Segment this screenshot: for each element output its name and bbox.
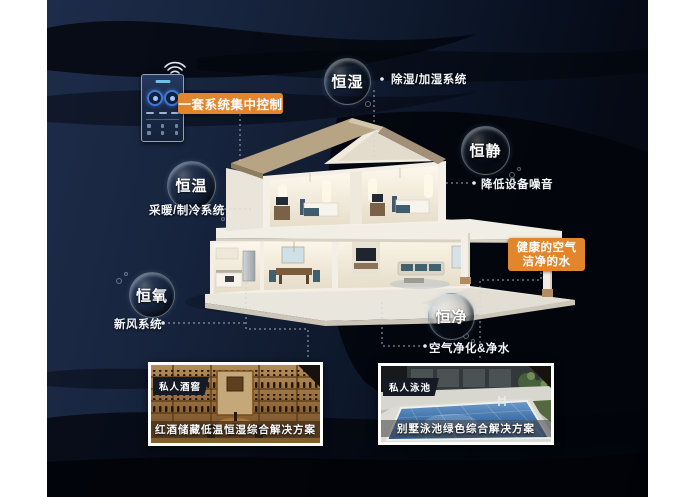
device-label-row <box>146 112 179 114</box>
callout-reduce-equipment-noise: 降低设备噪音 <box>481 176 553 192</box>
callout-fresh-air-system: 新风系统 <box>114 316 162 332</box>
corner-ribbon <box>529 366 551 388</box>
callout-heating-cooling-system: 采暖/制冷系统 <box>149 202 225 218</box>
pool-tag: 私人泳池 <box>383 378 439 396</box>
corner-ribbon <box>298 365 320 387</box>
clean-water-line: 洁净的水 <box>523 255 571 269</box>
pool-caption: 别墅泳池绿色综合解决方案 <box>381 420 551 437</box>
wine-cellar-tag: 私人酒窖 <box>153 377 209 395</box>
device-screen-title <box>155 80 170 83</box>
callout-dehumidify-humidify-system: 除湿/加湿系统 <box>391 71 467 87</box>
bubble-constant-quiet: 恒静 <box>461 126 510 175</box>
device-button-row-1 <box>147 124 178 128</box>
bubble-constant-clean: 恒净 <box>428 293 475 340</box>
wine-cellar-card: 私人酒窖 红酒储藏低温恒湿综合解决方案 <box>148 362 323 446</box>
healthy-air-water-box: 健康的空气 洁净的水 <box>508 238 585 271</box>
wine-cellar-caption: 红酒储藏低温恒湿综合解决方案 <box>151 421 320 438</box>
bubble-constant-humidity: 恒湿 <box>324 58 371 105</box>
healthy-air-line: 健康的空气 <box>517 241 577 255</box>
callout-air-water-purification: 空气净化&净水 <box>429 340 510 356</box>
central-control-banner: 一套系统集中控制 <box>178 93 283 114</box>
pool-card: 私人泳池 别墅泳池绿色综合解决方案 <box>378 363 554 445</box>
device-dial-left <box>147 90 163 106</box>
device-button-row-2 <box>147 131 178 135</box>
device-divider <box>146 119 179 120</box>
infographic-page: 一套系统集中控制 恒湿 恒静 恒温 恒氧 恒净 除湿/加湿系统 降低设备噪音 采… <box>0 0 700 497</box>
bubble-constant-oxygen: 恒氧 <box>129 272 175 318</box>
